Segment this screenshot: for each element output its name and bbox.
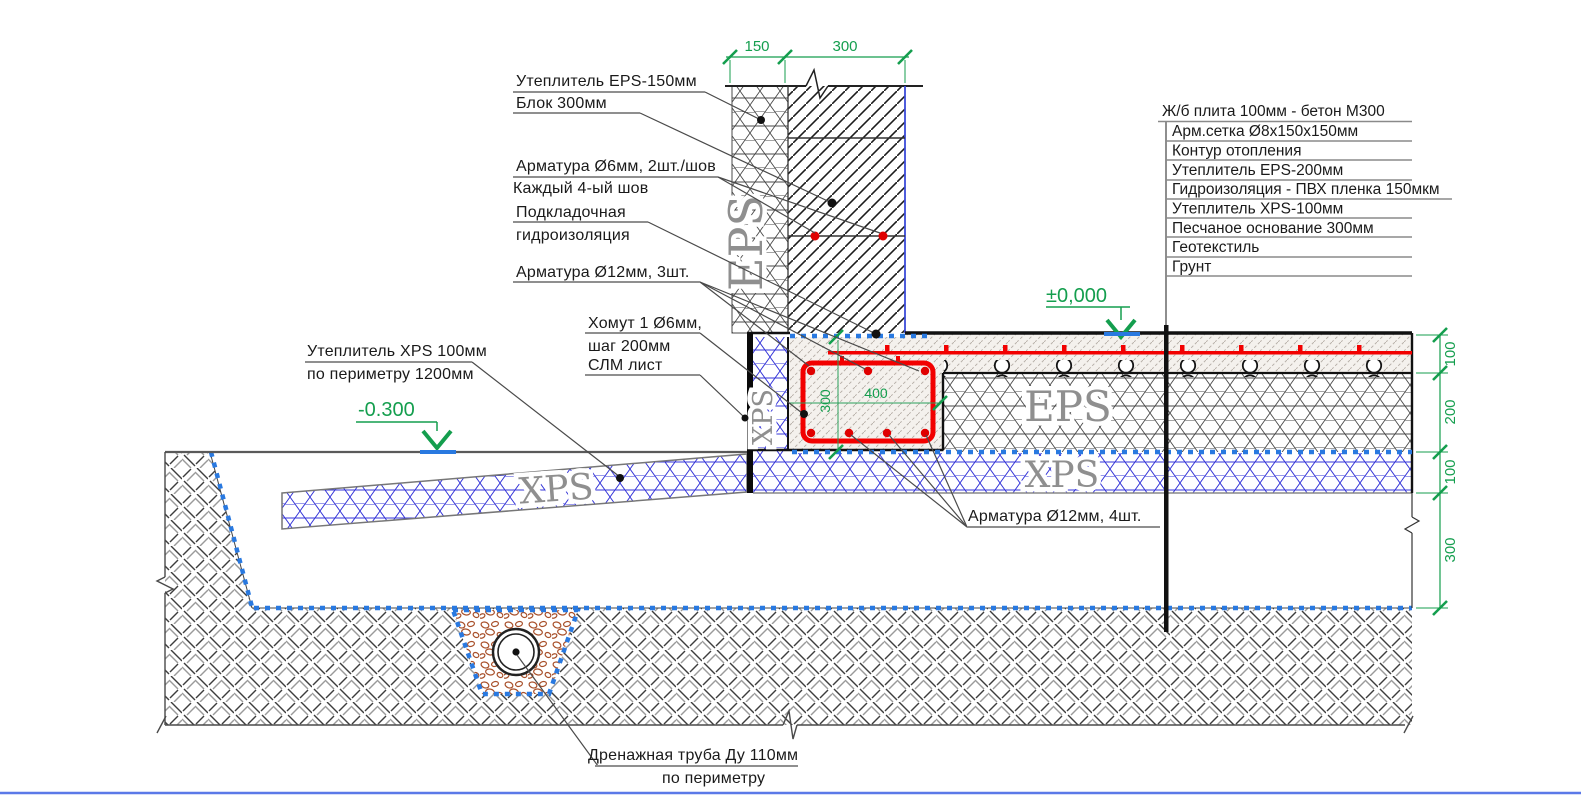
heating-contour-pipes [944,360,1414,377]
callout-bedding-2: гидроизоляция [516,227,630,244]
dim-beam-400: 400 [864,385,888,401]
callout-stirrup-2: шаг 200мм [588,338,671,355]
layer-item-eps: Утеплитель EPS-200мм [1172,162,1343,179]
callout-drain-2: по периметру [662,770,765,787]
wing-xps-tag: XPS [518,466,595,512]
callout-xps-perimeter-1: Утеплитель XPS 100мм [307,343,487,360]
dim-right-100a: 100 [1442,341,1459,366]
floor-xps-tag: XPS [1025,455,1100,496]
layer-item-mesh: Арм.сетка Ø8х150х150мм [1172,123,1358,140]
callout-rebar12-bottom: Арматура Ø12мм, 4шт. [968,508,1142,525]
elevation-zero: ±0,000 [1046,285,1107,307]
layer-item-heating: Контур отопления [1172,143,1301,160]
callout-every4: Каждый 4-ый шов [513,180,648,197]
callout-eps150: Утеплитель EPS-150мм [516,73,697,90]
callout-xps-perimeter-2: по периметру 1200мм [307,366,474,383]
slab-mesh-ticks [838,345,1412,351]
wall-block [788,86,905,333]
elevation-minus-300: -0.300 [358,399,415,421]
dim-right-100b: 100 [1442,459,1459,484]
callout-rebar12-top: Арматура Ø12мм, 3шт. [516,264,690,281]
dim-beam-300: 300 [817,389,833,413]
layer-item-xps: Утеплитель XPS-100мм [1172,201,1343,218]
zero-level-blue-mark [1104,332,1140,336]
layer-item-soil: Грунт [1172,259,1211,276]
callout-bedding-1: Подкладочная [516,204,626,221]
construction-drawing-canvas: EPS EPS XPS XPS XPS [0,0,1581,800]
strip-xps-tag: XPS [748,389,779,445]
dim-right-200: 200 [1442,399,1459,424]
layer-item-geotextile: Геотекстиль [1172,239,1259,256]
callout-drain-1: Дренажная труба Ду 110мм [588,747,798,764]
dim-right-300: 300 [1442,537,1459,562]
minus-level-blue-mark [420,450,456,454]
callout-slm: СЛМ лист [588,357,663,374]
layers-list-title: Ж/б плита 100мм - бетон М300 [1162,103,1385,120]
slab-mesh-bar [828,351,1412,355]
floor-eps-layer [943,373,1412,452]
dim-top-300: 300 [832,38,857,55]
floor-eps-tag: EPS [1024,382,1112,431]
layer-item-pvc: Гидроизоляция - ПВХ пленка 150мкм [1172,181,1440,198]
layer-item-sand: Песчаное основание 300мм [1172,220,1374,237]
dim-top-150: 150 [744,38,769,55]
callout-rebar6: Арматура Ø6мм, 2шт./шов [516,158,716,175]
callout-stirrup-1: Хомут 1 Ø6мм, [588,315,702,332]
foundation-section-drawing: EPS EPS XPS XPS XPS [0,0,1581,800]
wall-eps-tag: EPS [719,195,773,291]
drain-pipe-center [512,648,519,655]
callout-block: Блок 300мм [516,95,607,112]
